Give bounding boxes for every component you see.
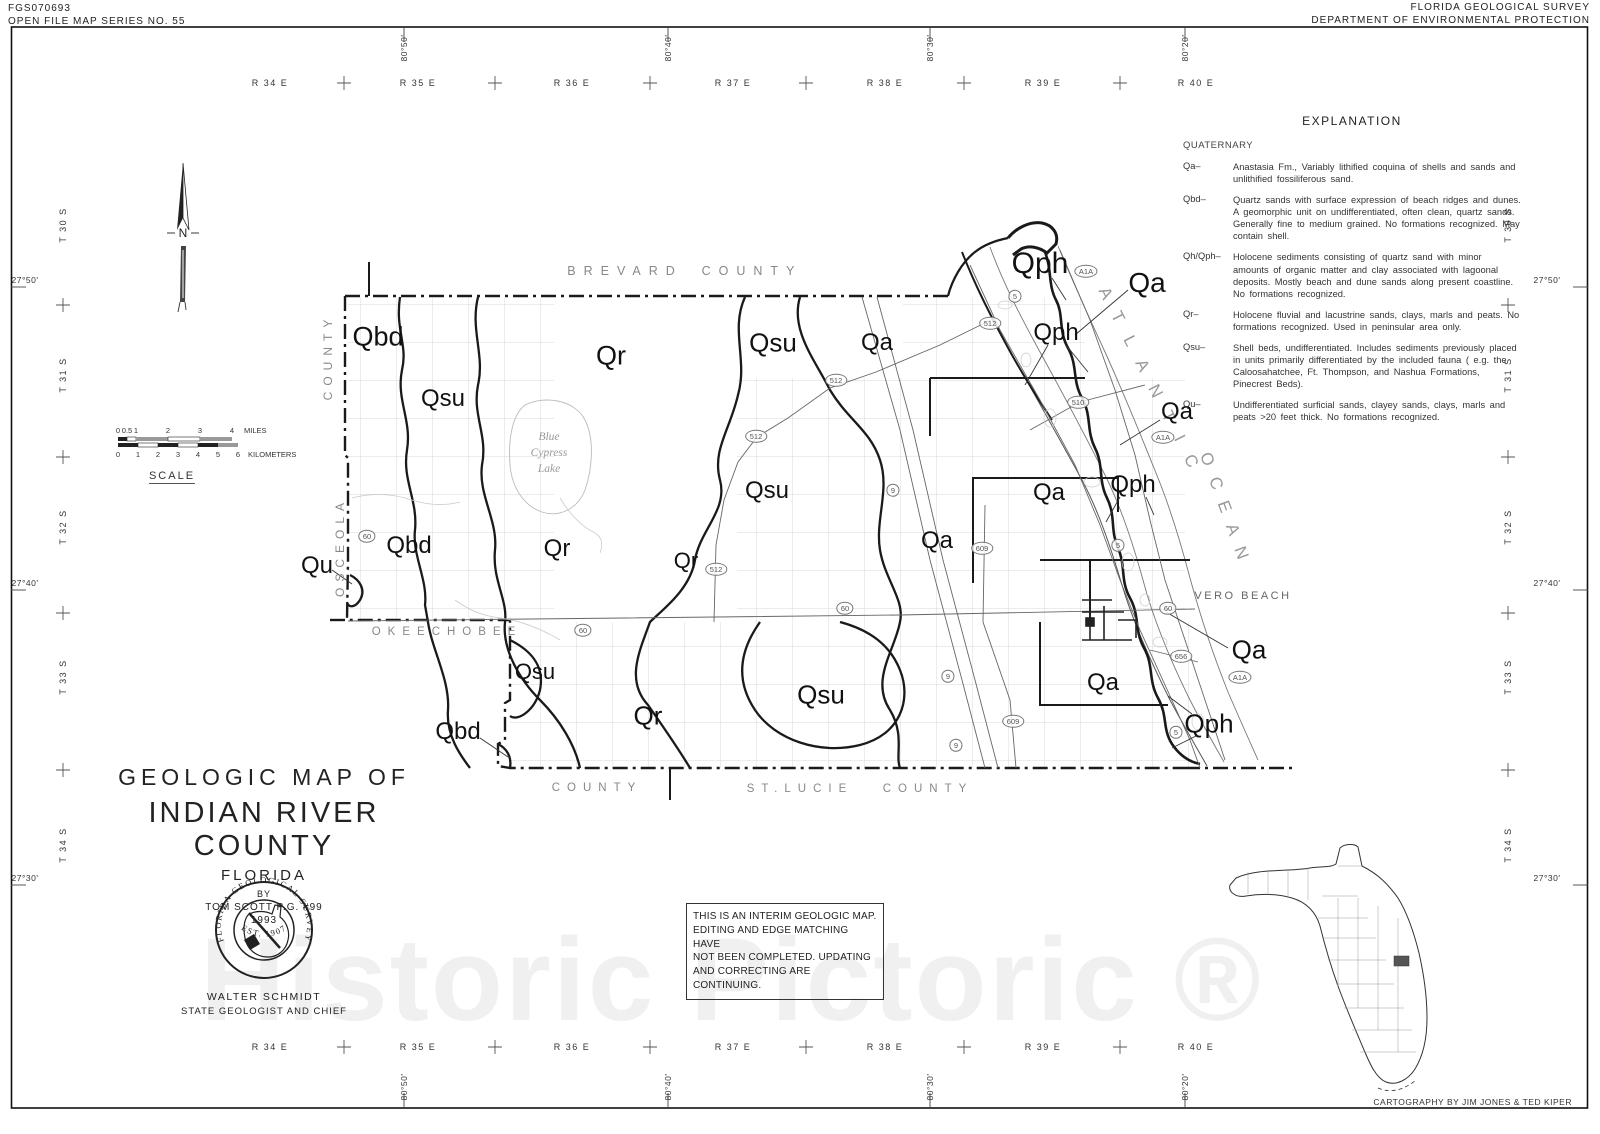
scale-mile-tick: 0.5 bbox=[122, 426, 132, 435]
legend-code: Qsu– bbox=[1183, 342, 1233, 390]
latitude-label: 27°40' bbox=[1534, 578, 1561, 588]
latitude-label: 27°50' bbox=[1534, 275, 1561, 285]
township-label: T 34 S bbox=[1503, 827, 1513, 862]
map-author: TOM SCOTT P.G. #99 bbox=[84, 902, 444, 913]
unit-label: Qr bbox=[674, 548, 698, 574]
range-label: R 35 E bbox=[400, 78, 437, 88]
legend-text: Undifferentiated surficial sands, clayey… bbox=[1233, 399, 1521, 423]
scale-km-tick: 1 bbox=[136, 450, 140, 459]
longitude-label: 80°30' bbox=[925, 35, 935, 62]
unit-label: Qa bbox=[1128, 267, 1165, 299]
county-name-okeechobee: OKEECHOBEE bbox=[372, 626, 523, 638]
unit-label: Qbd bbox=[352, 322, 403, 353]
document-id-block: FGS070693 OPEN FILE MAP SERIES NO. 55 bbox=[8, 3, 185, 28]
road-shield: A1A bbox=[1151, 431, 1174, 444]
county-name-brevard: COUNTY bbox=[702, 264, 803, 278]
scale-km-unit: KILOMETERS bbox=[248, 450, 296, 459]
scale-km-tick: 0 bbox=[116, 450, 120, 459]
legend-code: Qu– bbox=[1183, 399, 1233, 423]
road-shield: 609 bbox=[1002, 715, 1024, 728]
lake-label-line: Blue bbox=[531, 429, 568, 445]
explanation-title: EXPLANATION bbox=[1183, 114, 1521, 128]
road-shield: 5 bbox=[1169, 726, 1182, 739]
unit-label: Qu bbox=[301, 552, 333, 580]
county-name-brevard: BREVARD bbox=[567, 264, 683, 278]
road-shield: 9 bbox=[941, 670, 954, 683]
legend-entry: Qu– Undifferentiated surficial sands, cl… bbox=[1183, 399, 1521, 423]
road-shield: 5 bbox=[1008, 290, 1021, 303]
latitude-label: 27°40' bbox=[12, 578, 39, 588]
unit-label: Qa bbox=[921, 527, 953, 555]
legend-entry: Qh/Qph– Holocene sediments consisting of… bbox=[1183, 251, 1521, 299]
range-label: R 35 E bbox=[400, 1042, 437, 1052]
road-shield: 512 bbox=[825, 374, 847, 387]
county-name-stlucie: COUNTY bbox=[883, 783, 974, 795]
latitude-label: 27°30' bbox=[1534, 873, 1561, 883]
range-label: R 37 E bbox=[715, 78, 752, 88]
agency-block: FLORIDA GEOLOGICAL SURVEY DEPARTMENT OF … bbox=[1311, 2, 1590, 27]
legend-text: Holocene sediments consisting of quartz … bbox=[1233, 251, 1521, 299]
legend-code: Qa– bbox=[1183, 161, 1233, 185]
scale-bar bbox=[118, 437, 238, 447]
road-shield: 9 bbox=[949, 739, 962, 752]
cartography-credit: CARTOGRAPHY BY JIM JONES & TED KIPER bbox=[1373, 1097, 1572, 1107]
unit-label: Qbd bbox=[386, 532, 431, 560]
road-shield: 5 bbox=[1111, 539, 1124, 552]
range-label: R 36 E bbox=[554, 1042, 591, 1052]
road-shield: 512 bbox=[705, 563, 727, 576]
unit-label: Qbd bbox=[435, 718, 480, 746]
lake-label: Blue Cypress Lake bbox=[531, 429, 568, 477]
township-label: T 31 S bbox=[58, 357, 68, 392]
scale-caption: SCALE bbox=[149, 470, 195, 484]
range-label: R 38 E bbox=[867, 1042, 904, 1052]
interim-note-box: THIS IS AN INTERIM GEOLOGIC MAP. EDITING… bbox=[686, 903, 884, 1000]
range-label: R 36 E bbox=[554, 78, 591, 88]
road-shield: 510 bbox=[1067, 396, 1089, 409]
map-title-line3: FLORIDA bbox=[84, 867, 444, 884]
latitude-label: 27°50' bbox=[12, 275, 39, 285]
unit-label: Qsu bbox=[797, 680, 845, 711]
scale-mile-tick: 3 bbox=[198, 426, 202, 435]
road-shield: 60 bbox=[574, 624, 591, 637]
scale-km-tick: 3 bbox=[176, 450, 180, 459]
unit-label: Qa bbox=[861, 329, 893, 357]
legend-code: Qh/Qph– bbox=[1183, 251, 1233, 299]
range-label: R 34 E bbox=[252, 78, 289, 88]
road-shield: A1A bbox=[1228, 671, 1251, 684]
title-block: GEOLOGIC MAP OF INDIAN RIVER COUNTY FLOR… bbox=[84, 764, 444, 926]
scale-mile-tick: 4 bbox=[230, 426, 234, 435]
chief-block: WALTER SCHMIDT STATE GEOLOGIST AND CHIEF bbox=[84, 989, 444, 1017]
note-line: THIS IS AN INTERIM GEOLOGIC MAP. bbox=[693, 910, 877, 924]
unit-label: Qsu bbox=[515, 659, 555, 685]
county-name-okeechobee: COUNTY bbox=[552, 782, 643, 794]
legend-text: Quartz sands with surface expression of … bbox=[1233, 194, 1521, 242]
legend-text: Shell beds, undifferentiated. Includes s… bbox=[1233, 342, 1521, 390]
scale-km-tick: 6 bbox=[236, 450, 240, 459]
map-title-line2: INDIAN RIVER COUNTY bbox=[84, 797, 444, 863]
road-shield: A1A bbox=[1074, 265, 1097, 278]
road-shield: 512 bbox=[745, 430, 767, 443]
range-label: R 38 E bbox=[867, 78, 904, 88]
scale-km-tick: 5 bbox=[216, 450, 220, 459]
map-title-line1: GEOLOGIC MAP OF bbox=[84, 764, 444, 791]
unit-label: Qph bbox=[1110, 471, 1155, 499]
road-shield: 609 bbox=[971, 542, 993, 555]
unit-label: Qph bbox=[1033, 319, 1078, 347]
legend-text: Holocene fluvial and lacustrine sands, c… bbox=[1233, 309, 1521, 333]
longitude-label: 80°40' bbox=[663, 1074, 673, 1101]
road-shield: 512 bbox=[979, 317, 1001, 330]
road-shield: 60 bbox=[1159, 602, 1176, 615]
county-name-stlucie: ST.LUCIE bbox=[747, 783, 854, 795]
latitude-label: 27°30' bbox=[12, 873, 39, 883]
longitude-label: 80°40' bbox=[663, 35, 673, 62]
road-shield: 60 bbox=[358, 530, 375, 543]
township-label: T 32 S bbox=[58, 509, 68, 544]
legend-text: Anastasia Fm., Variably lithified coquin… bbox=[1233, 161, 1521, 185]
legend-entry: Qr– Holocene fluvial and lacustrine sand… bbox=[1183, 309, 1521, 333]
scale-mile-tick: 0 bbox=[116, 426, 120, 435]
scale-mile-tick: 2 bbox=[166, 426, 170, 435]
unit-label: Qsu bbox=[421, 385, 465, 413]
longitude-label: 80°20' bbox=[1180, 35, 1190, 62]
state-geologist-name: WALTER SCHMIDT bbox=[84, 991, 444, 1003]
range-label: R 39 E bbox=[1025, 1042, 1062, 1052]
legend-entry: Qbd– Quartz sands with surface expressio… bbox=[1183, 194, 1521, 242]
map-sheet: Historic Pictoric ® bbox=[0, 0, 1600, 1134]
unit-label: Qr bbox=[634, 701, 663, 732]
note-line: NOT BEEN COMPLETED. UPDATING bbox=[693, 951, 877, 965]
county-name-osceola: OSCEOLA bbox=[333, 497, 347, 597]
agency-line2: DEPARTMENT OF ENVIRONMENTAL PROTECTION bbox=[1311, 15, 1590, 28]
legend-code: Qr– bbox=[1183, 309, 1233, 333]
series-title: OPEN FILE MAP SERIES NO. 55 bbox=[8, 16, 185, 29]
doc-id: FGS070693 bbox=[8, 3, 185, 16]
scale-km-tick: 2 bbox=[156, 450, 160, 459]
road-shield: 9 bbox=[886, 484, 899, 497]
scale-km-tick: 4 bbox=[196, 450, 200, 459]
unit-label: Qsu bbox=[745, 477, 789, 505]
note-line: EDITING AND EDGE MATCHING HAVE bbox=[693, 924, 877, 952]
map-year: 1993 bbox=[84, 915, 444, 926]
unit-label: Qr bbox=[544, 535, 571, 563]
north-label: N bbox=[179, 226, 188, 240]
township-label: T 34 S bbox=[58, 827, 68, 862]
longitude-label: 80°20' bbox=[1180, 1074, 1190, 1101]
map-title-by: BY bbox=[84, 889, 444, 899]
note-line: AND CORRECTING ARE CONTINUING. bbox=[693, 965, 877, 993]
township-label: T 32 S bbox=[1503, 509, 1513, 544]
legend-code: Qbd– bbox=[1183, 194, 1233, 242]
county-name-osceola: COUNTY bbox=[321, 314, 335, 401]
agency-line1: FLORIDA GEOLOGICAL SURVEY bbox=[1311, 2, 1590, 15]
road-shield: 60 bbox=[836, 602, 853, 615]
range-label: R 37 E bbox=[715, 1042, 752, 1052]
unit-label: Qsu bbox=[749, 328, 797, 359]
unit-label: Qr bbox=[596, 341, 626, 372]
unit-label: Qph bbox=[1184, 709, 1233, 740]
explanation-legend: EXPLANATION QUATERNARY Qa– Anastasia Fm.… bbox=[1183, 114, 1521, 432]
range-label: R 39 E bbox=[1025, 78, 1062, 88]
state-geologist-title: STATE GEOLOGIST AND CHIEF bbox=[84, 1006, 444, 1017]
road-shield: 656 bbox=[1170, 650, 1192, 663]
range-label: R 40 E bbox=[1178, 78, 1215, 88]
scale-miles-unit: MILES bbox=[244, 426, 267, 435]
township-label: T 33 S bbox=[58, 659, 68, 694]
longitude-label: 80°50' bbox=[399, 1074, 409, 1101]
township-label: T 33 S bbox=[1503, 659, 1513, 694]
lake-label-line: Cypress bbox=[531, 445, 568, 461]
township-label: T 30 S bbox=[58, 207, 68, 242]
range-label: R 40 E bbox=[1178, 1042, 1215, 1052]
city-label-vero-beach: VERO BEACH bbox=[1194, 590, 1291, 602]
section-grid bbox=[348, 298, 1190, 768]
legend-entry: Qsu– Shell beds, undifferentiated. Inclu… bbox=[1183, 342, 1521, 390]
range-label: R 34 E bbox=[252, 1042, 289, 1052]
scale-mile-tick: 1 bbox=[134, 426, 138, 435]
longitude-label: 80°50' bbox=[399, 35, 409, 62]
longitude-label: 80°30' bbox=[925, 1074, 935, 1101]
explanation-era: QUATERNARY bbox=[1183, 140, 1521, 151]
unit-label: Qph bbox=[1012, 247, 1069, 281]
florida-inset bbox=[1230, 844, 1427, 1090]
unit-label: Qa bbox=[1033, 479, 1065, 507]
unit-label: Qa bbox=[1232, 635, 1267, 666]
lake-label-line: Lake bbox=[531, 461, 568, 477]
legend-entry: Qa– Anastasia Fm., Variably lithified co… bbox=[1183, 161, 1521, 185]
unit-label: Qa bbox=[1087, 669, 1119, 697]
